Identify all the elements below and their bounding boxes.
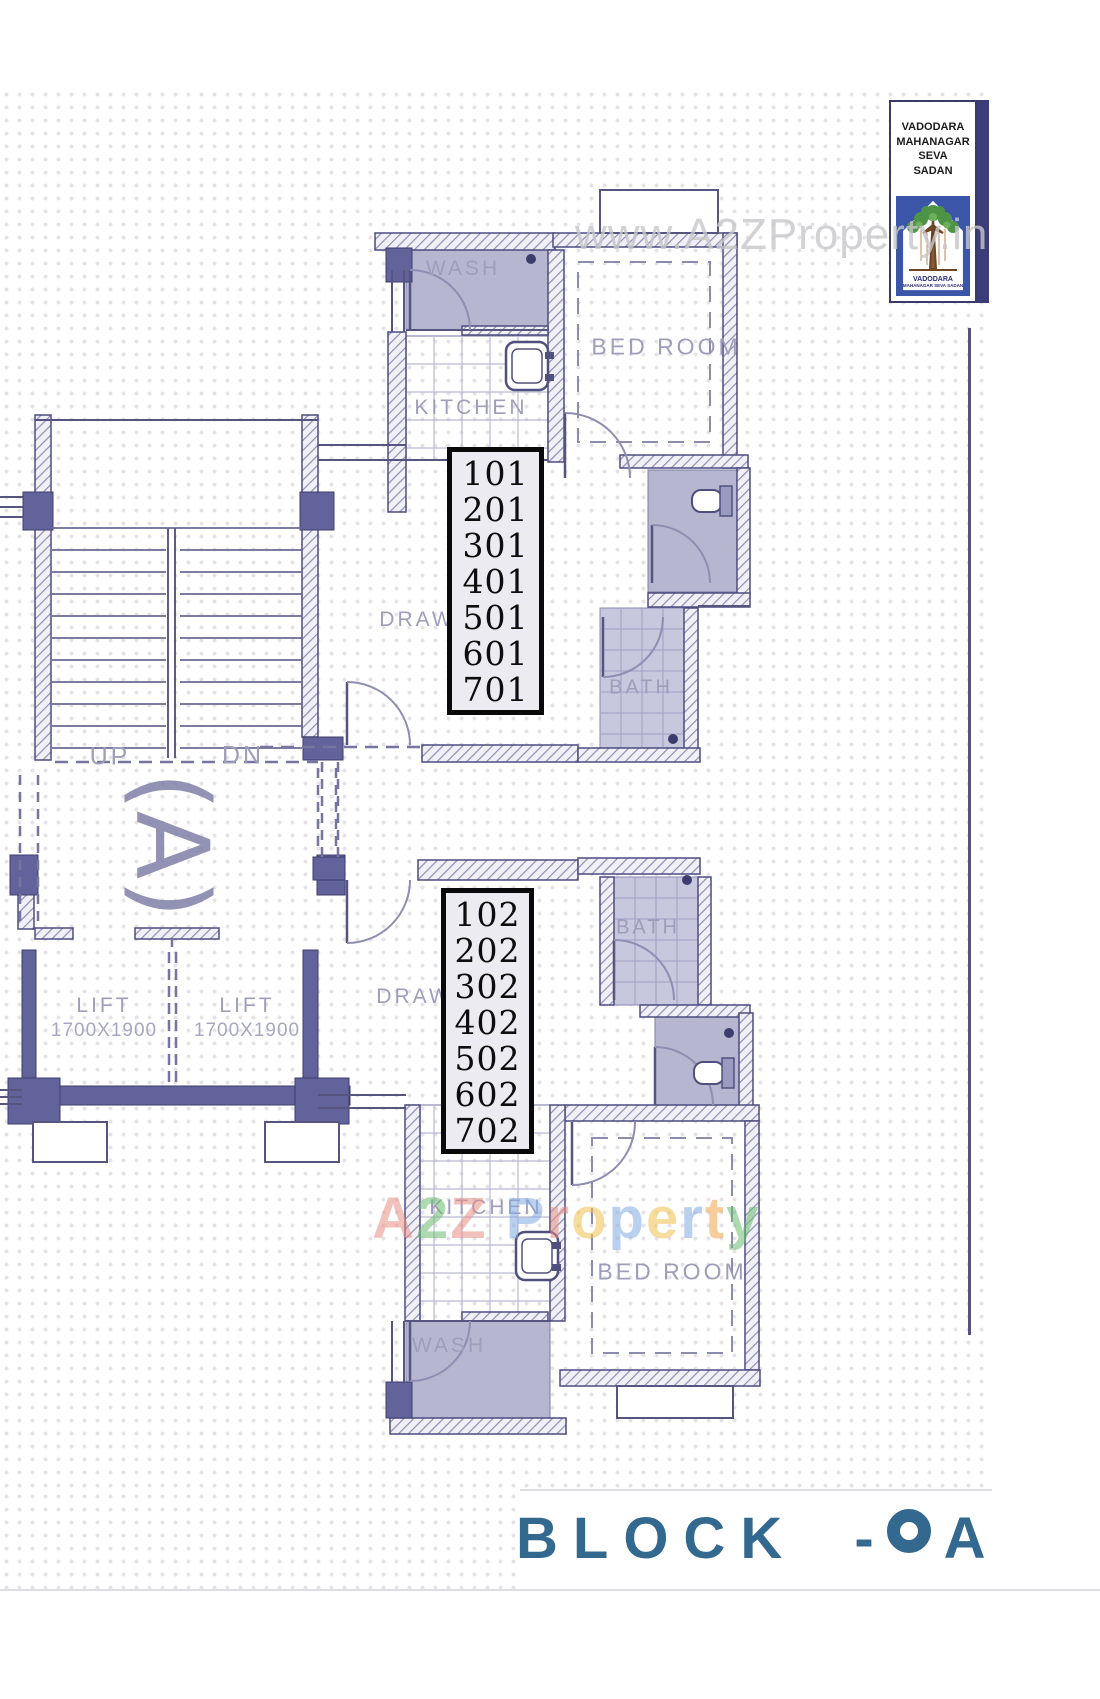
brand-letter: e	[646, 1186, 680, 1251]
brand-letter: P	[506, 1186, 547, 1251]
unit-number: 701	[452, 672, 539, 708]
brand-letter: A	[372, 1186, 416, 1251]
footer-bullet-icon	[887, 1509, 931, 1553]
unit-number: 602	[446, 1077, 529, 1113]
logo-org-line: MAHANAGAR	[891, 135, 975, 150]
unit-number: 202	[446, 933, 529, 969]
emblem-caption-line-2: MAHANAGAR SEVA SADAN	[899, 283, 967, 288]
logo-side-bar	[977, 100, 989, 303]
logo-card: VADODARA MAHANAGAR SEVA SADAN VADODARA M	[889, 100, 977, 303]
room-label-wash-2: WASH	[412, 1334, 486, 1358]
block-core-letter: (A)	[114, 772, 231, 918]
room-label-kitchen-1: KITCHEN	[414, 396, 527, 420]
brand-letter: Z	[450, 1186, 487, 1251]
lift-2-label: LIFT	[219, 994, 274, 1018]
unit-number: 301	[452, 528, 539, 564]
brand-letter: y	[726, 1186, 760, 1251]
room-label-bedroom-1: BED ROOM	[591, 334, 740, 361]
watermark-brand: A2Z Property	[338, 1118, 760, 1252]
stair-up-label: UP	[90, 743, 131, 772]
lift-1-size: 1700X1900	[51, 1020, 157, 1042]
logo-org-line: SADAN	[891, 164, 975, 179]
unit-number: 201	[452, 492, 539, 528]
kitchen-sink-1	[506, 342, 554, 390]
room-label-wash-1: WASH	[426, 257, 500, 281]
toilet-1	[692, 486, 732, 516]
logo-org-line: SEVA	[891, 149, 975, 164]
logo-org-name: VADODARA MAHANAGAR SEVA SADAN	[891, 102, 975, 178]
unit-number: 501	[452, 600, 539, 636]
toilet-2	[694, 1058, 734, 1088]
unit-stack-1: 101 201 301 401 501 601 701	[447, 447, 544, 715]
unit-stack-2: 102 202 302 402 502 602 702	[441, 888, 534, 1154]
unit-number: 502	[446, 1041, 529, 1077]
room-label-bedroom-2: BED ROOM	[597, 1259, 746, 1286]
room-label-bath-2: BATH	[616, 917, 680, 940]
brand-letter: o	[571, 1186, 608, 1251]
unit-number: 402	[446, 1005, 529, 1041]
brand-letter: r	[680, 1186, 705, 1251]
room-label-bath-1: BATH	[609, 677, 673, 700]
brand-letter: t	[705, 1186, 726, 1251]
brand-letter: r	[546, 1186, 571, 1251]
unit-number: 302	[446, 969, 529, 1005]
right-border-line	[968, 328, 971, 1335]
watermark-site: www.A2ZProperty.in	[575, 210, 988, 260]
logo-emblem-caption: VADODARA MAHANAGAR SEVA SADAN	[899, 276, 967, 288]
brand-letter	[488, 1186, 506, 1251]
stair-down-label: DN	[222, 742, 264, 771]
lift-1-label: LIFT	[76, 994, 131, 1018]
room-label-draw-1: DRAW	[379, 608, 454, 632]
unit-number: 401	[452, 564, 539, 600]
staircase	[52, 528, 302, 758]
unit-number: 601	[452, 636, 539, 672]
lift-2-size: 1700X1900	[194, 1020, 300, 1042]
emblem-caption-line-1: VADODARA	[899, 276, 967, 283]
brand-letter: p	[609, 1186, 646, 1251]
unit-number: 101	[452, 456, 539, 492]
unit-number: 102	[446, 897, 529, 933]
brand-letter: 2	[416, 1186, 450, 1251]
logo-org-line: VADODARA	[891, 120, 975, 135]
